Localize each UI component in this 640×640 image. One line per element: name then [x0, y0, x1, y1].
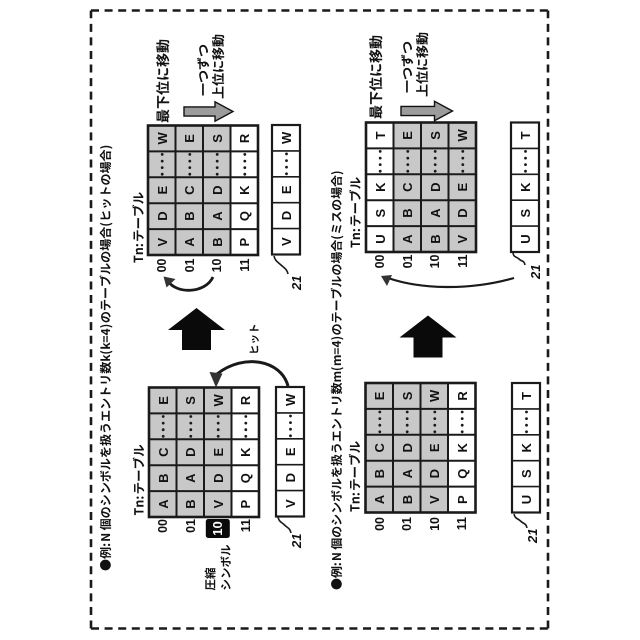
svg-text:10: 10: [428, 254, 442, 268]
svg-text:00: 00: [373, 254, 387, 268]
svg-text:D: D: [211, 474, 226, 483]
svg-text:P: P: [455, 495, 470, 504]
svg-text:D: D: [210, 186, 225, 195]
svg-text:S: S: [400, 391, 415, 400]
svg-text:11: 11: [456, 254, 470, 267]
svg-text:D: D: [279, 211, 294, 220]
svg-text:V: V: [427, 495, 442, 504]
svg-text:C: C: [182, 185, 197, 195]
svg-text:D: D: [283, 473, 298, 482]
svg-text:R: R: [237, 133, 252, 143]
svg-text:W: W: [427, 389, 442, 402]
svg-text:E: E: [455, 183, 470, 192]
svg-text:W: W: [155, 132, 170, 145]
svg-text:A: A: [400, 468, 415, 478]
svg-text:W: W: [279, 131, 294, 144]
svg-text:W: W: [211, 394, 226, 407]
svg-text:K: K: [519, 442, 534, 452]
svg-text:Q: Q: [237, 211, 252, 221]
svg-text:B: B: [428, 234, 443, 243]
svg-text:B: B: [210, 237, 225, 246]
svg-text:B: B: [156, 474, 171, 483]
svg-text:K: K: [455, 442, 470, 452]
svg-text:D: D: [427, 469, 442, 478]
svg-text:R: R: [238, 395, 253, 405]
svg-text:U: U: [518, 234, 533, 243]
svg-text:10: 10: [428, 517, 442, 531]
svg-text:V: V: [279, 237, 294, 246]
svg-text:S: S: [373, 208, 388, 217]
svg-text:01: 01: [400, 517, 414, 531]
svg-text:E: E: [279, 185, 294, 194]
svg-text:S: S: [183, 396, 198, 405]
svg-text:T: T: [519, 392, 534, 400]
svg-text:00: 00: [373, 517, 387, 531]
svg-text:A: A: [210, 211, 225, 221]
svg-text:01: 01: [183, 258, 197, 272]
svg-text:11: 11: [238, 258, 252, 271]
svg-text:10: 10: [210, 258, 224, 272]
svg-text:01: 01: [401, 254, 415, 268]
svg-text:C: C: [400, 182, 415, 192]
svg-text:A: A: [183, 473, 198, 483]
svg-text:B: B: [183, 499, 198, 508]
svg-text:S: S: [518, 208, 533, 217]
svg-text:D: D: [400, 443, 415, 452]
svg-text:00: 00: [155, 258, 169, 272]
svg-text:00: 00: [156, 519, 170, 533]
svg-text:V: V: [283, 499, 298, 508]
svg-text:B: B: [400, 208, 415, 217]
svg-text:11: 11: [455, 517, 469, 530]
svg-text:10: 10: [210, 521, 225, 535]
svg-text:W: W: [283, 393, 298, 406]
svg-text:S: S: [519, 469, 534, 478]
svg-text:A: A: [428, 208, 443, 218]
svg-text:E: E: [372, 391, 387, 400]
svg-text:V: V: [455, 234, 470, 243]
svg-text:P: P: [237, 237, 252, 246]
svg-text:B: B: [182, 211, 197, 220]
svg-text:11: 11: [239, 519, 253, 532]
svg-text:Q: Q: [455, 469, 470, 479]
svg-text:E: E: [400, 131, 415, 140]
svg-text:21: 21: [289, 534, 304, 549]
svg-text:T: T: [373, 131, 388, 139]
svg-text:D: D: [428, 183, 443, 192]
svg-text:S: S: [210, 134, 225, 143]
svg-text:K: K: [373, 182, 388, 192]
svg-text:K: K: [238, 447, 253, 457]
svg-text:E: E: [182, 134, 197, 143]
svg-text:A: A: [372, 494, 387, 504]
svg-text:21: 21: [528, 265, 543, 280]
svg-text:E: E: [155, 186, 170, 195]
svg-text:C: C: [372, 442, 387, 452]
svg-text:E: E: [156, 396, 171, 405]
svg-text:D: D: [455, 208, 470, 217]
svg-text:A: A: [182, 237, 197, 247]
svg-text:21: 21: [525, 529, 540, 544]
svg-text:D: D: [183, 448, 198, 457]
svg-text:E: E: [211, 448, 226, 457]
svg-text:T: T: [518, 131, 533, 139]
svg-text:C: C: [156, 447, 171, 457]
svg-text:A: A: [156, 499, 171, 509]
svg-text:B: B: [400, 495, 415, 504]
svg-text:D: D: [155, 211, 170, 220]
svg-text:P: P: [238, 499, 253, 508]
svg-text:21: 21: [289, 276, 304, 291]
svg-text:U: U: [519, 495, 534, 504]
svg-text:K: K: [237, 185, 252, 195]
svg-text:A: A: [400, 234, 415, 244]
svg-text:V: V: [155, 237, 170, 246]
svg-text:E: E: [283, 447, 298, 456]
svg-text:E: E: [427, 443, 442, 452]
svg-text:01: 01: [184, 519, 198, 533]
svg-text:Q: Q: [238, 473, 253, 483]
svg-text:B: B: [372, 469, 387, 478]
svg-text:R: R: [455, 391, 470, 401]
svg-text:U: U: [373, 234, 388, 243]
svg-text:S: S: [428, 131, 443, 140]
svg-text:K: K: [518, 182, 533, 192]
svg-text:V: V: [211, 499, 226, 508]
svg-text:W: W: [455, 129, 470, 142]
